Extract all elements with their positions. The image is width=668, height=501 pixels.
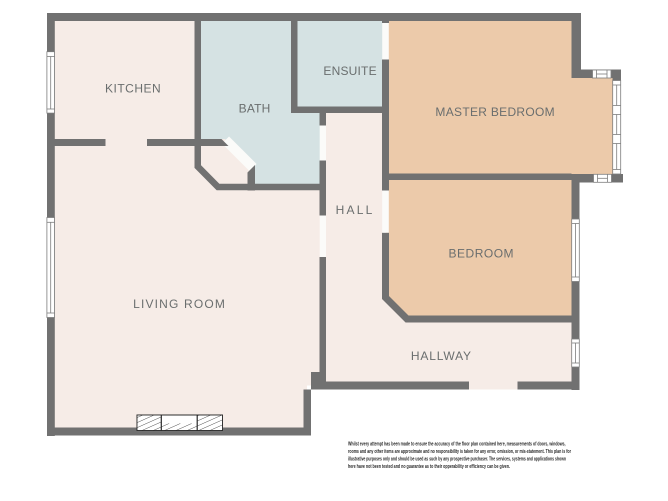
svg-text:HALLWAY: HALLWAY — [411, 349, 472, 363]
svg-text:KITCHEN: KITCHEN — [105, 82, 161, 96]
svg-text:BEDROOM: BEDROOM — [449, 247, 515, 261]
svg-text:HALL: HALL — [336, 203, 375, 217]
svg-text:Whilst every attempt has been: Whilst every attempt has been made to en… — [348, 442, 566, 448]
svg-text:illustrative purposes only and: illustrative purposes only and should be… — [348, 457, 566, 463]
svg-text:here have not been tested and: here have not been tested and no guarant… — [348, 464, 510, 470]
svg-text:MASTER BEDROOM: MASTER BEDROOM — [435, 105, 555, 119]
svg-text:LIVING ROOM: LIVING ROOM — [133, 297, 226, 311]
svg-text:ENSUITE: ENSUITE — [323, 64, 376, 78]
svg-text:rooms and any other items are: rooms and any other items are approximat… — [348, 449, 571, 455]
svg-text:BATH: BATH — [239, 101, 271, 115]
